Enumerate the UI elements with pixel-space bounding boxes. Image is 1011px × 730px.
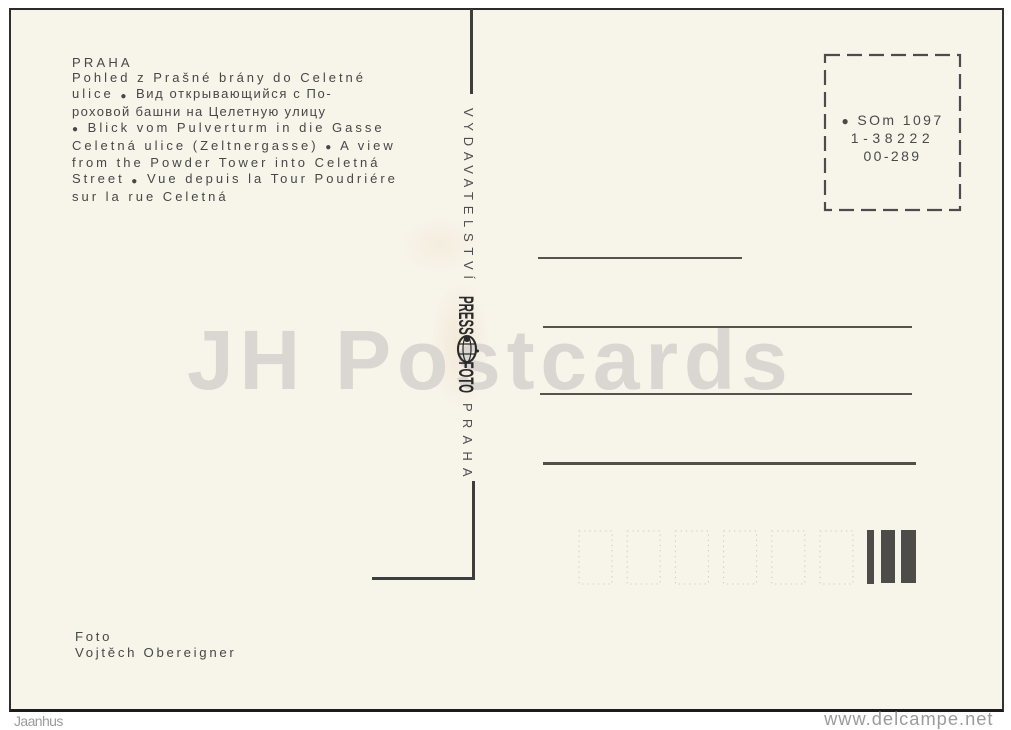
svg-text:FOTO: FOTO xyxy=(456,362,478,394)
svg-text:PRESS: PRESS xyxy=(456,296,478,335)
